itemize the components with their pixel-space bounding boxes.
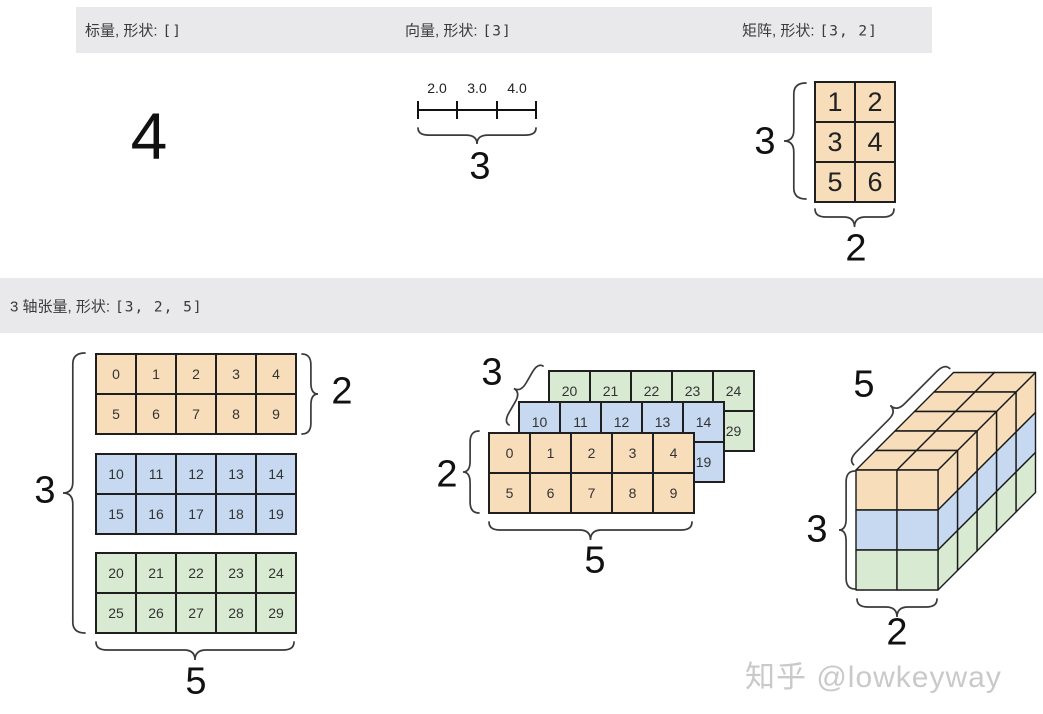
- scalar-header-label: 标量, 形状:: [85, 23, 158, 40]
- tensor-cube: [850, 366, 1042, 596]
- matrix-cell: 4: [855, 122, 895, 162]
- grid-cell: 11: [136, 454, 176, 494]
- flat-rows-dim: 2: [331, 371, 352, 414]
- grid-cell: 3: [612, 433, 653, 473]
- tensor-shapes-diagram: 标量, 形状:[] 向量, 形状:[3] 矩阵, 形状:[3, 2] 4 2.0…: [0, 0, 1043, 714]
- stacked-axis0-dim: 3: [481, 352, 502, 395]
- grid-cell: 1: [530, 433, 571, 473]
- scalar-shape-code: []: [163, 24, 182, 40]
- numberline-tick: [456, 101, 458, 119]
- tensor-flat-slice-0: 0 1 2 3 4 5 6 7 8 9: [95, 353, 297, 435]
- grid-cell: 2: [176, 354, 216, 394]
- grid-cell: 0: [96, 354, 136, 394]
- grid-cell: 19: [256, 494, 296, 534]
- vector-tick-label: 3.0: [457, 80, 497, 96]
- stacked-rows-dim: 2: [436, 454, 457, 497]
- grid-cell: 4: [256, 354, 296, 394]
- grid-cell: 26: [136, 593, 176, 633]
- flat-rows-brace: [301, 353, 319, 435]
- grid-cell: 5: [96, 394, 136, 434]
- grid-cell: 8: [216, 394, 256, 434]
- scalar-header: 标量, 形状:[]: [85, 20, 182, 41]
- numberline-axis: [417, 109, 537, 111]
- grid-cell: 7: [176, 394, 216, 434]
- scalar-value: 4: [131, 98, 168, 174]
- top-header-bar: 标量, 形状:[] 向量, 形状:[3] 矩阵, 形状:[3, 2]: [76, 7, 932, 53]
- grid-cell: 5: [489, 473, 530, 513]
- grid-cell: 25: [96, 593, 136, 633]
- grid-cell: 23: [216, 553, 256, 593]
- numberline-tick: [417, 101, 419, 119]
- tensor-shape-code: [3, 2, 5]: [115, 299, 203, 315]
- vector-shape-code: [3]: [483, 24, 512, 40]
- grid-cell: 12: [176, 454, 216, 494]
- grid-cell: 21: [136, 553, 176, 593]
- grid-cell: 20: [96, 553, 136, 593]
- stacked-cols-brace: [488, 521, 693, 541]
- matrix-cell: 1: [815, 82, 855, 122]
- cube-rows-dim: 3: [806, 509, 827, 552]
- matrix-rows-dim: 3: [754, 121, 775, 164]
- matrix-cell: 3: [815, 122, 855, 162]
- grid-cell: 14: [256, 454, 296, 494]
- matrix-rows-brace: [783, 82, 807, 200]
- grid-cell: 18: [216, 494, 256, 534]
- grid-cell: 22: [176, 553, 216, 593]
- matrix-cols-brace: [814, 208, 895, 228]
- grid-cell: 6: [136, 394, 176, 434]
- grid-cell: 17: [176, 494, 216, 534]
- grid-cell: 1: [136, 354, 176, 394]
- tensor-header-label: 3 轴张量, 形状:: [10, 298, 110, 315]
- grid-cell: 10: [96, 454, 136, 494]
- watermark: 知乎 @lowkeyway: [745, 652, 1002, 696]
- tensor-flat-slice-2: 20 21 22 23 24 25 26 27 28 29: [95, 552, 297, 634]
- vector-dim-label: 3: [469, 146, 490, 189]
- flat-axis0-dim: 3: [34, 470, 55, 513]
- grid-cell: 13: [216, 454, 256, 494]
- vector-tick-label: 2.0: [417, 80, 457, 96]
- stacked-rows-brace: [462, 430, 480, 514]
- grid-cell: 3: [216, 354, 256, 394]
- stacked-cols-dim: 5: [584, 540, 605, 583]
- cube-rows-brace: [838, 470, 856, 590]
- grid-cell: 28: [216, 593, 256, 633]
- tensor-header: 3 轴张量, 形状:[3, 2, 5]: [10, 295, 203, 316]
- matrix-header-label: 矩阵, 形状:: [742, 23, 815, 40]
- flat-cols-dim: 5: [185, 661, 206, 704]
- grid-cell: 24: [256, 553, 296, 593]
- matrix-header: 矩阵, 形状:[3, 2]: [742, 20, 878, 41]
- vector-length-brace: [417, 127, 537, 145]
- matrix-shape-code: [3, 2]: [820, 24, 878, 40]
- grid-cell: 0: [489, 433, 530, 473]
- vector-header: 向量, 形状:[3]: [405, 20, 512, 41]
- grid-cell: 9: [256, 394, 296, 434]
- flat-cols-brace: [95, 641, 295, 661]
- numberline-tick: [496, 101, 498, 119]
- vector-tick-label: 4.0: [497, 80, 537, 96]
- matrix-cell: 5: [815, 162, 855, 202]
- grid-cell: 27: [176, 593, 216, 633]
- grid-cell: 9: [653, 473, 694, 513]
- matrix-grid: 1 2 3 4 5 6: [814, 81, 896, 203]
- grid-cell: 16: [136, 494, 176, 534]
- cube-depth-dim: 5: [853, 364, 874, 407]
- grid-cell: 7: [571, 473, 612, 513]
- matrix-cols-dim: 2: [845, 228, 866, 271]
- numberline-tick: [535, 101, 537, 119]
- tensor-header-bar: 3 轴张量, 形状:[3, 2, 5]: [0, 278, 1043, 333]
- tensor-flat-slice-1: 10 11 12 13 14 15 16 17 18 19: [95, 453, 297, 535]
- grid-cell: 2: [571, 433, 612, 473]
- matrix-cell: 2: [855, 82, 895, 122]
- grid-cell: 29: [256, 593, 296, 633]
- flat-axis0-brace: [62, 352, 86, 634]
- grid-cell: 8: [612, 473, 653, 513]
- grid-cell: 15: [96, 494, 136, 534]
- cube-cols-dim: 2: [886, 612, 907, 655]
- matrix-cell: 6: [855, 162, 895, 202]
- vector-header-label: 向量, 形状:: [405, 23, 478, 40]
- grid-cell: 6: [530, 473, 571, 513]
- grid-cell: 4: [653, 433, 694, 473]
- tensor-stacked-slice-0: 0 1 2 3 4 5 6 7 8 9: [488, 432, 695, 514]
